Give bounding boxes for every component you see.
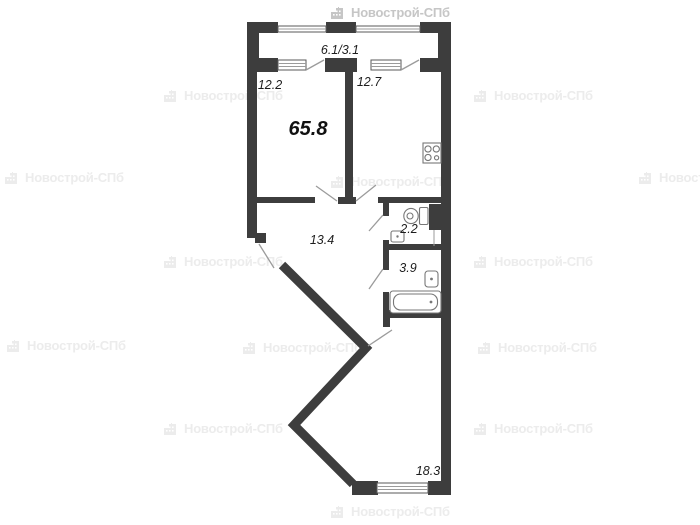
room-window <box>278 60 306 70</box>
walls <box>247 22 451 495</box>
living-door-leaf <box>368 330 392 346</box>
hall-top-wall-left <box>247 197 315 203</box>
kitchen-window <box>371 60 401 70</box>
bottom-wall-left-block <box>352 481 378 495</box>
wc-door-leaf <box>369 215 383 231</box>
balcony-top-block-left <box>247 22 278 33</box>
kitchen-door-leaf <box>356 185 376 201</box>
left-outer-wall <box>247 58 257 238</box>
rooms-divider-foot <box>338 197 356 204</box>
bath-bottom-stub <box>383 310 390 327</box>
rooms-divider-wall <box>345 58 353 204</box>
zigzag-wall <box>282 265 366 484</box>
total-area-label: 65.8 <box>289 118 329 140</box>
vent-shaft <box>429 204 441 230</box>
bath-area-label: 3.9 <box>399 261 416 275</box>
window-vent-line <box>306 60 324 70</box>
room-door-leaf <box>316 186 337 201</box>
living-room-window <box>377 483 428 493</box>
bottom-wall-right-block <box>428 481 451 495</box>
entrance-door-leaf <box>259 244 274 268</box>
kitchen-area-label: 12.7 <box>357 75 382 89</box>
hallway-area-label: 13.4 <box>310 233 334 247</box>
wc-bath-divider-wall <box>383 244 441 250</box>
floorplan-screenshot: Новострой-СПб Новострой-СПб Новострой-СП… <box>0 0 700 525</box>
bathtub-icon <box>390 291 441 313</box>
entrance-door-stub <box>255 233 266 243</box>
floor-plan: 65.8 6.1/3.1 12.2 12.7 13.4 2.2 3.9 18.3 <box>0 0 700 525</box>
balcony-area-label: 6.1/3.1 <box>321 43 359 57</box>
stove-icon <box>423 143 441 163</box>
wc-left-wall-top <box>383 197 389 216</box>
room-area-label: 12.2 <box>258 78 282 92</box>
bath-door-leaf <box>369 269 383 289</box>
window-vent-line <box>401 60 419 70</box>
washbasin-icon <box>425 271 438 287</box>
living-area-label: 18.3 <box>416 464 440 478</box>
balcony-top-block-mid <box>326 22 356 33</box>
wc-area-label: 2.2 <box>399 222 417 236</box>
right-outer-wall <box>441 22 451 495</box>
